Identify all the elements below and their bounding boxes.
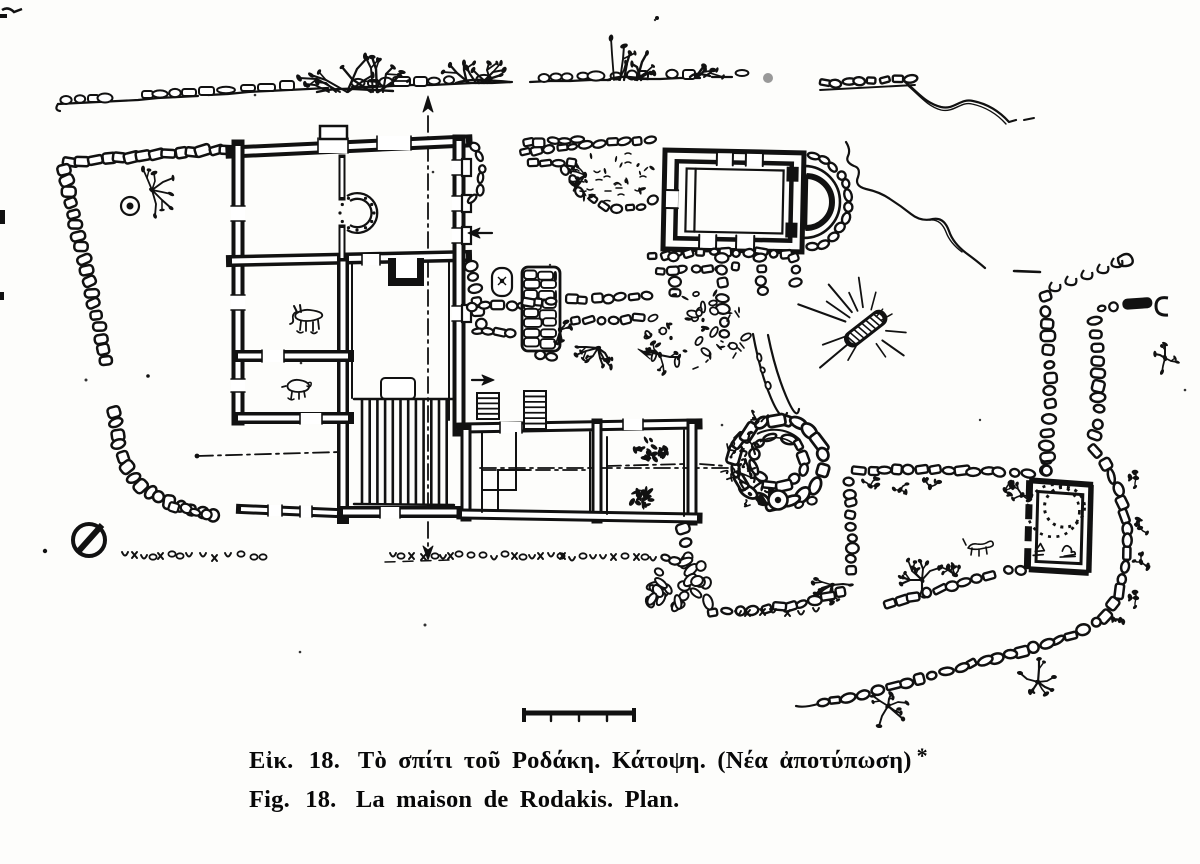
svg-text:Fig. 18. La maison de Rodakis.: Fig. 18. La maison de Rodakis. Plan. [249, 786, 679, 813]
svg-text:Εἰκ. 18. Τὸ σπίτι τοῦ Ροδάκη.: Εἰκ. 18. Τὸ σπίτι τοῦ Ροδάκη. Κάτοψη. (Ν… [249, 743, 928, 774]
